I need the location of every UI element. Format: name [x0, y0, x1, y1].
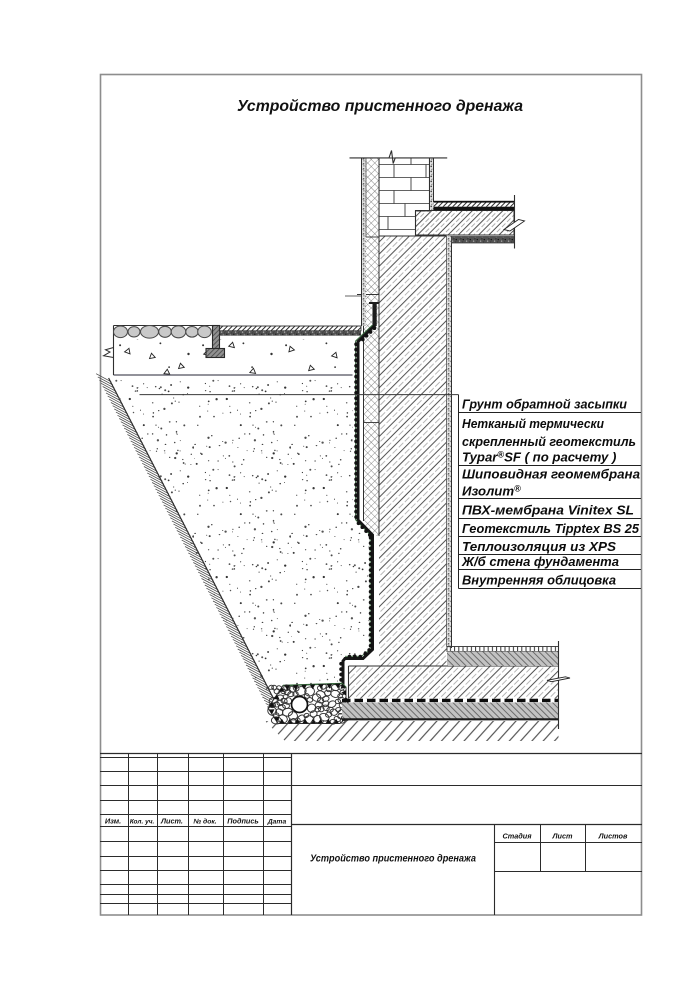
- svg-text:Кол. уч.: Кол. уч.: [130, 819, 155, 826]
- svg-text:Шиповидная геомембрана: Шиповидная геомембрана: [462, 467, 640, 482]
- svg-text:№ док.: № док.: [193, 818, 216, 826]
- svg-text:Стадия: Стадия: [502, 832, 532, 841]
- svg-text:Теплоизоляция из ХPS: Теплоизоляция из ХPS: [462, 539, 616, 554]
- svg-text:Дата: Дата: [267, 819, 287, 826]
- svg-text:ПВХ-мембрана Vinitex SL: ПВХ-мембрана Vinitex SL: [462, 503, 634, 518]
- svg-text:Устройство пристенного дренажа: Устройство пристенного дренажа: [310, 854, 477, 865]
- svg-text:Typar®SF ( по расчету ): Typar®SF ( по расчету ): [462, 450, 616, 465]
- svg-text:Ж/б стена фундамента: Ж/б стена фундамента: [461, 554, 619, 569]
- svg-text:Подпись: Подпись: [227, 817, 259, 826]
- svg-text:скрепленный геотекстиль: скрепленный геотекстиль: [462, 434, 636, 449]
- svg-text:Устройство пристенного дренажа: Устройство пристенного дренажа: [237, 98, 523, 115]
- svg-text:Геотекстиль Tipptex BS 25: Геотекстиль Tipptex BS 25: [462, 521, 640, 536]
- svg-text:Изм.: Изм.: [105, 817, 121, 826]
- svg-text:Грунт обратной засыпки: Грунт обратной засыпки: [462, 397, 627, 412]
- svg-text:Лист: Лист: [551, 832, 573, 841]
- svg-text:Нетканый термически: Нетканый термически: [462, 416, 604, 431]
- svg-text:Изолит®: Изолит®: [462, 484, 521, 499]
- svg-text:Лист.: Лист.: [160, 817, 183, 826]
- svg-text:Листов: Листов: [598, 832, 628, 841]
- svg-text:Внутренняя облицовка: Внутренняя облицовка: [462, 573, 616, 588]
